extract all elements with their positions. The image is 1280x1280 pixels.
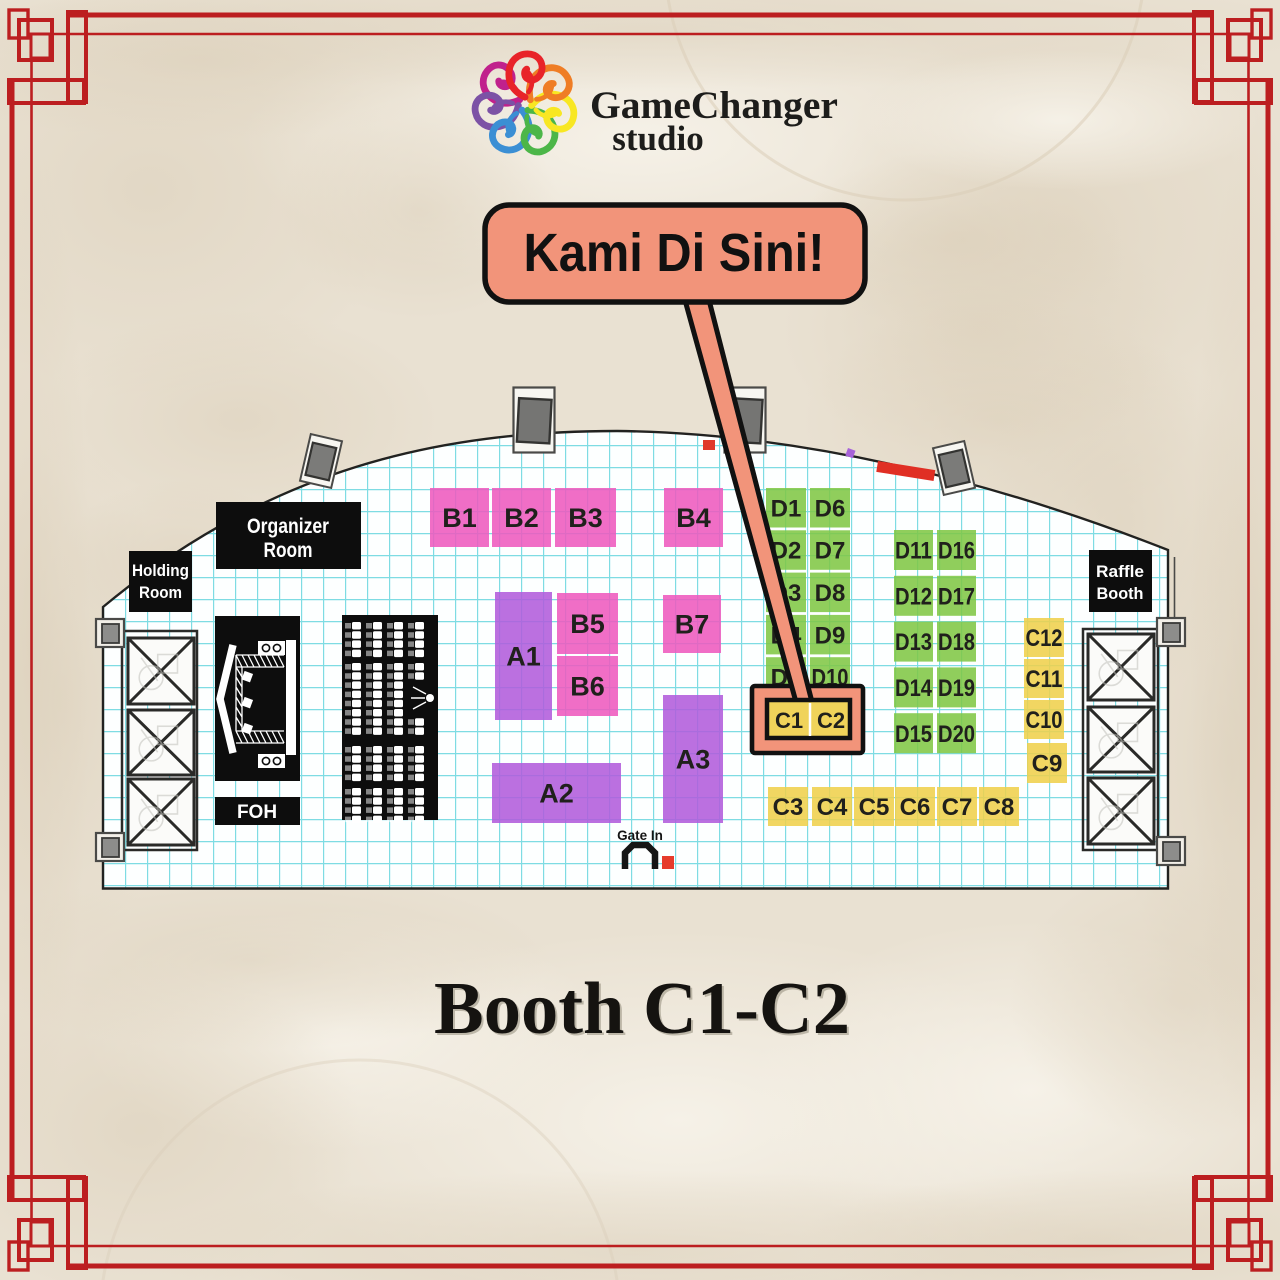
svg-text:D16: D16: [938, 538, 975, 565]
svg-text:D20: D20: [938, 721, 975, 748]
svg-text:Organizer: Organizer: [247, 515, 329, 538]
svg-text:B3: B3: [568, 503, 603, 533]
svg-text:C7: C7: [942, 794, 973, 821]
svg-text:C3: C3: [773, 794, 804, 821]
svg-text:C4: C4: [817, 794, 848, 821]
svg-text:FOH: FOH: [237, 802, 277, 823]
svg-text:Room: Room: [139, 584, 182, 602]
svg-text:studio: studio: [612, 119, 703, 158]
svg-text:C9: C9: [1032, 751, 1063, 778]
svg-text:A2: A2: [539, 779, 574, 809]
svg-text:Gate In: Gate In: [617, 828, 663, 843]
svg-text:D1: D1: [771, 495, 802, 522]
svg-text:A1: A1: [506, 642, 541, 672]
svg-text:D11: D11: [895, 538, 932, 565]
svg-text:D18: D18: [938, 629, 975, 656]
svg-text:Booth C1-C2: Booth C1-C2: [434, 968, 850, 1050]
svg-text:Booth: Booth: [1097, 584, 1144, 603]
svg-text:D17: D17: [938, 583, 975, 610]
svg-text:A3: A3: [676, 745, 711, 775]
svg-text:Kami Di Sini!: Kami Di Sini!: [524, 223, 825, 283]
svg-text:D7: D7: [815, 538, 846, 565]
svg-text:D14: D14: [895, 675, 933, 702]
svg-text:Holding: Holding: [132, 562, 189, 580]
svg-text:D6: D6: [815, 495, 846, 522]
svg-text:D12: D12: [895, 583, 932, 610]
svg-text:C5: C5: [859, 794, 890, 821]
svg-text:B6: B6: [570, 672, 605, 702]
svg-text:Room: Room: [264, 539, 313, 562]
svg-text:C10: C10: [1026, 707, 1063, 734]
svg-text:B7: B7: [675, 610, 710, 640]
svg-text:D9: D9: [815, 622, 846, 649]
svg-text:B5: B5: [570, 609, 605, 639]
svg-text:C8: C8: [984, 794, 1015, 821]
svg-text:C6: C6: [900, 794, 931, 821]
svg-text:D13: D13: [895, 629, 932, 656]
svg-text:B4: B4: [676, 503, 711, 533]
svg-text:B2: B2: [504, 503, 539, 533]
svg-text:C1: C1: [775, 708, 803, 733]
svg-text:D15: D15: [895, 721, 932, 748]
svg-text:C12: C12: [1026, 625, 1063, 652]
svg-text:C11: C11: [1026, 666, 1063, 693]
svg-text:Raffle: Raffle: [1096, 562, 1144, 581]
svg-text:D19: D19: [938, 675, 975, 702]
svg-text:C2: C2: [817, 708, 845, 733]
svg-text:B1: B1: [442, 503, 477, 533]
svg-text:D8: D8: [815, 580, 846, 607]
